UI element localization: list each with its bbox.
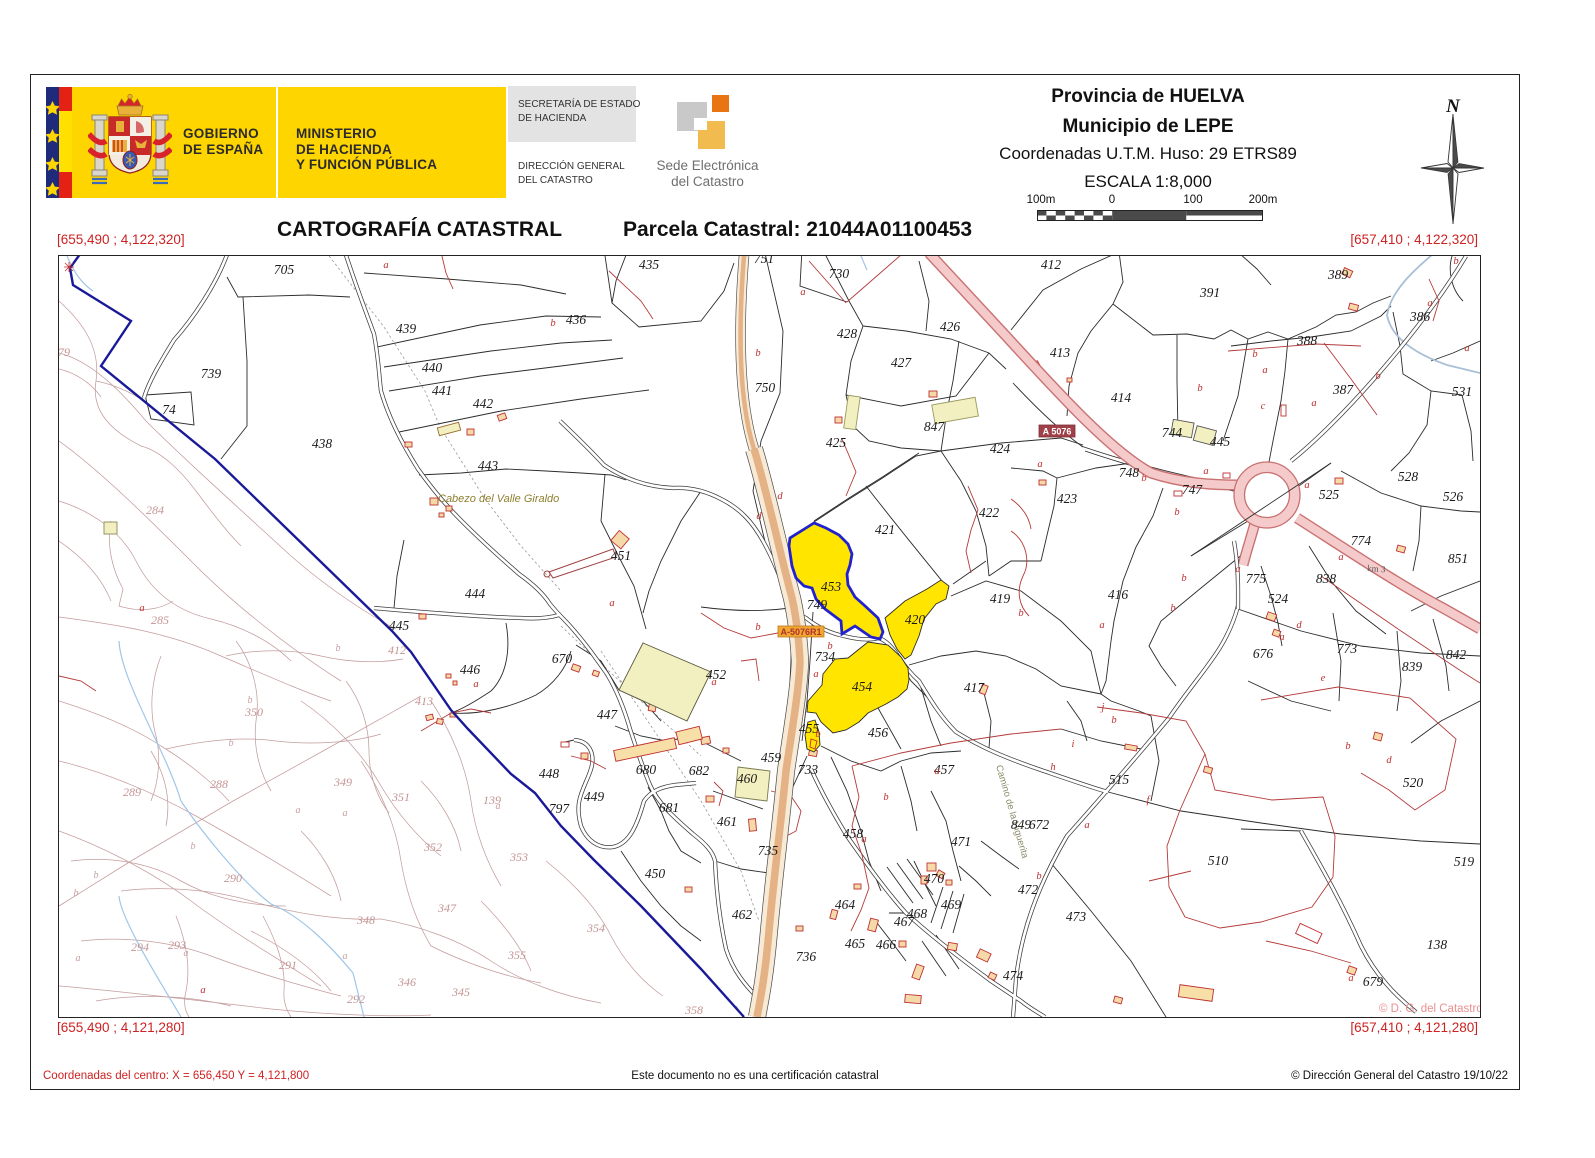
svg-text:470: 470: [924, 871, 945, 886]
svg-text:N: N: [1445, 96, 1461, 117]
svg-text:388: 388: [1296, 333, 1318, 348]
svg-text:446: 446: [460, 662, 481, 677]
svg-text:391: 391: [1199, 285, 1220, 300]
svg-text:462: 462: [732, 907, 753, 922]
svg-text:847: 847: [924, 419, 946, 434]
svg-text:b: b: [827, 641, 832, 652]
svg-text:b: b: [94, 870, 99, 881]
svg-text:747: 747: [1182, 482, 1204, 497]
svg-text:285: 285: [151, 613, 169, 627]
svg-text:413: 413: [1050, 345, 1071, 360]
svg-text:354: 354: [586, 921, 605, 935]
svg-text:b: b: [1453, 256, 1458, 267]
svg-text:851: 851: [1448, 551, 1468, 566]
svg-text:74: 74: [162, 402, 176, 417]
svg-text:a: a: [609, 598, 614, 609]
svg-text:a: a: [496, 801, 501, 812]
svg-text:464: 464: [835, 897, 856, 912]
svg-text:b: b: [883, 792, 888, 803]
svg-text:© D. G. del Catastro: © D. G. del Catastro: [1379, 1003, 1480, 1015]
svg-text:839: 839: [1402, 659, 1423, 674]
svg-text:138: 138: [1427, 937, 1448, 952]
svg-text:451: 451: [611, 548, 631, 563]
svg-text:a: a: [343, 808, 348, 819]
svg-text:b: b: [1375, 371, 1380, 382]
svg-text:a: a: [343, 951, 348, 962]
svg-text:528: 528: [1398, 469, 1419, 484]
svg-text:c: c: [1261, 401, 1266, 412]
svg-text:524: 524: [1268, 591, 1289, 606]
svg-text:389: 389: [1327, 267, 1349, 282]
svg-text:458: 458: [843, 826, 864, 841]
svg-text:465: 465: [845, 936, 866, 951]
svg-text:454: 454: [852, 679, 873, 694]
svg-text:773: 773: [1337, 641, 1358, 656]
svg-text:459: 459: [761, 750, 782, 765]
svg-text:748: 748: [1119, 465, 1140, 480]
svg-text:526: 526: [1443, 489, 1464, 504]
svg-text:450: 450: [645, 866, 666, 881]
svg-text:441: 441: [432, 383, 452, 398]
svg-text:a: a: [383, 260, 388, 271]
svg-text:472: 472: [1018, 882, 1039, 897]
svg-text:424: 424: [990, 441, 1011, 456]
svg-text:a: a: [1262, 365, 1267, 376]
svg-text:a: a: [1304, 480, 1309, 491]
svg-text:474: 474: [1003, 968, 1024, 983]
svg-text:744: 744: [1162, 425, 1183, 440]
svg-text:733: 733: [798, 762, 819, 777]
svg-text:b: b: [336, 643, 341, 654]
svg-text:531: 531: [1452, 384, 1472, 399]
svg-text:456: 456: [868, 725, 889, 740]
svg-text:a: a: [1464, 343, 1469, 354]
svg-text:682: 682: [689, 763, 710, 778]
svg-text:425: 425: [826, 435, 847, 450]
svg-text:705: 705: [274, 262, 295, 277]
svg-text:353: 353: [509, 850, 528, 864]
svg-text:289: 289: [123, 785, 141, 799]
svg-text:b: b: [755, 622, 760, 633]
svg-text:445: 445: [389, 618, 410, 633]
svg-text:471: 471: [951, 834, 971, 849]
svg-text:d: d: [1296, 620, 1302, 631]
svg-text:a: a: [813, 669, 818, 680]
svg-text:a: a: [1427, 298, 1432, 309]
svg-text:292: 292: [347, 992, 365, 1006]
svg-text:e: e: [1321, 673, 1326, 684]
svg-text:515: 515: [1109, 772, 1130, 787]
svg-text:352: 352: [423, 840, 442, 854]
svg-text:i: i: [1072, 739, 1075, 750]
svg-text:468: 468: [907, 906, 928, 921]
svg-text:290: 290: [224, 871, 242, 885]
svg-text:736: 736: [796, 949, 817, 964]
svg-text:520: 520: [1403, 775, 1424, 790]
svg-text:676: 676: [1253, 646, 1274, 661]
svg-text:749: 749: [807, 597, 828, 612]
svg-text:412: 412: [1041, 257, 1062, 272]
svg-text:426: 426: [940, 319, 961, 334]
svg-text:349: 349: [333, 775, 352, 789]
svg-text:413: 413: [415, 694, 433, 708]
svg-text:730: 730: [829, 266, 850, 281]
svg-text:439: 439: [396, 321, 417, 336]
svg-text:km 3: km 3: [1367, 563, 1386, 574]
svg-text:421: 421: [875, 522, 895, 537]
svg-text:345: 345: [451, 985, 470, 999]
svg-text:a: a: [934, 766, 939, 777]
svg-text:412: 412: [388, 643, 406, 657]
svg-text:355: 355: [507, 948, 526, 962]
svg-text:a: a: [139, 603, 144, 614]
svg-text:672: 672: [1029, 817, 1050, 832]
svg-text:a: a: [800, 287, 805, 298]
svg-text:b: b: [1181, 573, 1186, 584]
svg-text:440: 440: [422, 360, 443, 375]
svg-text:469: 469: [941, 897, 962, 912]
svg-text:291: 291: [279, 958, 297, 972]
svg-text:b: b: [550, 318, 555, 329]
svg-text:751: 751: [754, 256, 774, 266]
svg-text:A-5076R1: A-5076R1: [780, 627, 821, 637]
svg-text:79: 79: [59, 345, 70, 359]
svg-text:a: a: [1348, 973, 1353, 984]
svg-text:Cabezo del Valle Giraldo: Cabezo del Valle Giraldo: [438, 493, 559, 505]
svg-text:447: 447: [597, 707, 619, 722]
svg-text:294: 294: [131, 940, 149, 954]
svg-text:460: 460: [737, 771, 758, 786]
svg-text:a: a: [711, 677, 716, 688]
svg-text:a: a: [184, 948, 189, 959]
svg-text:a: a: [1311, 398, 1316, 409]
svg-text:842: 842: [1446, 647, 1467, 662]
svg-text:b: b: [755, 348, 760, 359]
svg-text:435: 435: [639, 257, 660, 272]
svg-text:387: 387: [1332, 382, 1355, 397]
svg-text:445: 445: [1210, 434, 1231, 449]
svg-text:b: b: [1174, 507, 1179, 518]
svg-text:838: 838: [1316, 571, 1337, 586]
svg-text:681: 681: [659, 800, 679, 815]
svg-text:436: 436: [566, 312, 587, 327]
svg-text:b: b: [229, 738, 234, 749]
svg-text:d: d: [777, 491, 783, 502]
svg-text:774: 774: [1351, 533, 1372, 548]
svg-text:735: 735: [758, 843, 779, 858]
svg-text:444: 444: [465, 586, 486, 601]
svg-text:a: a: [1099, 620, 1104, 631]
svg-text:a: a: [1084, 820, 1089, 831]
svg-text:a: a: [1279, 632, 1284, 643]
svg-text:420: 420: [905, 612, 926, 627]
svg-text:A 5076: A 5076: [1043, 427, 1072, 437]
svg-text:448: 448: [539, 766, 560, 781]
svg-text:Camino de la Higuerita: Camino de la Higuerita: [993, 764, 1030, 861]
svg-text:416: 416: [1108, 587, 1129, 602]
svg-text:284: 284: [146, 503, 164, 517]
svg-text:358: 358: [684, 1003, 703, 1017]
svg-text:b: b: [1252, 349, 1257, 360]
svg-text:b: b: [1111, 715, 1116, 726]
svg-text:443: 443: [478, 458, 499, 473]
svg-text:453: 453: [821, 579, 842, 594]
svg-text:797: 797: [549, 801, 571, 816]
svg-text:h: h: [1050, 762, 1055, 773]
svg-text:a: a: [1338, 552, 1343, 563]
svg-text:350: 350: [244, 705, 263, 719]
svg-text:473: 473: [1066, 909, 1087, 924]
svg-text:419: 419: [990, 591, 1011, 606]
svg-text:775: 775: [1246, 571, 1267, 586]
svg-text:510: 510: [1208, 853, 1229, 868]
svg-text:b: b: [815, 729, 820, 740]
svg-text:a: a: [200, 985, 205, 996]
svg-text:438: 438: [312, 436, 333, 451]
svg-text:a: a: [1037, 459, 1042, 470]
svg-text:b: b: [1018, 608, 1023, 619]
svg-text:428: 428: [837, 326, 858, 341]
svg-text:423: 423: [1057, 491, 1078, 506]
svg-text:466: 466: [876, 937, 897, 952]
svg-text:d: d: [756, 511, 762, 522]
svg-text:b: b: [1345, 741, 1350, 752]
svg-text:386: 386: [1409, 309, 1431, 324]
svg-text:a: a: [473, 679, 478, 690]
svg-text:b: b: [248, 695, 253, 706]
svg-text:461: 461: [717, 814, 737, 829]
svg-text:750: 750: [755, 380, 776, 395]
svg-text:d: d: [1386, 755, 1392, 766]
svg-text:b: b: [191, 841, 196, 852]
svg-text:739: 739: [201, 366, 222, 381]
svg-text:680: 680: [636, 762, 657, 777]
svg-text:b: b: [1170, 603, 1175, 614]
svg-text:b: b: [1197, 383, 1202, 394]
svg-text:519: 519: [1454, 854, 1475, 869]
svg-text:b: b: [1036, 871, 1041, 882]
svg-text:a: a: [1203, 466, 1208, 477]
svg-text:b: b: [74, 888, 79, 899]
svg-text:288: 288: [210, 777, 228, 791]
svg-text:449: 449: [584, 789, 605, 804]
svg-text:a: a: [76, 953, 81, 964]
svg-text:351: 351: [391, 790, 410, 804]
svg-text:a: a: [861, 834, 866, 845]
svg-text:a: a: [296, 805, 301, 816]
svg-text:670: 670: [552, 651, 573, 666]
svg-text:b: b: [1141, 473, 1146, 484]
svg-text:442: 442: [473, 396, 494, 411]
svg-text:346: 346: [397, 975, 416, 989]
svg-text:427: 427: [891, 355, 913, 370]
svg-text:414: 414: [1111, 390, 1132, 405]
svg-text:348: 348: [356, 913, 375, 927]
svg-text:679: 679: [1363, 974, 1384, 989]
svg-text:347: 347: [437, 901, 457, 915]
svg-text:525: 525: [1319, 487, 1340, 502]
svg-text:422: 422: [979, 505, 1000, 520]
svg-text:417: 417: [964, 680, 986, 695]
svg-text:a: a: [1235, 564, 1240, 575]
